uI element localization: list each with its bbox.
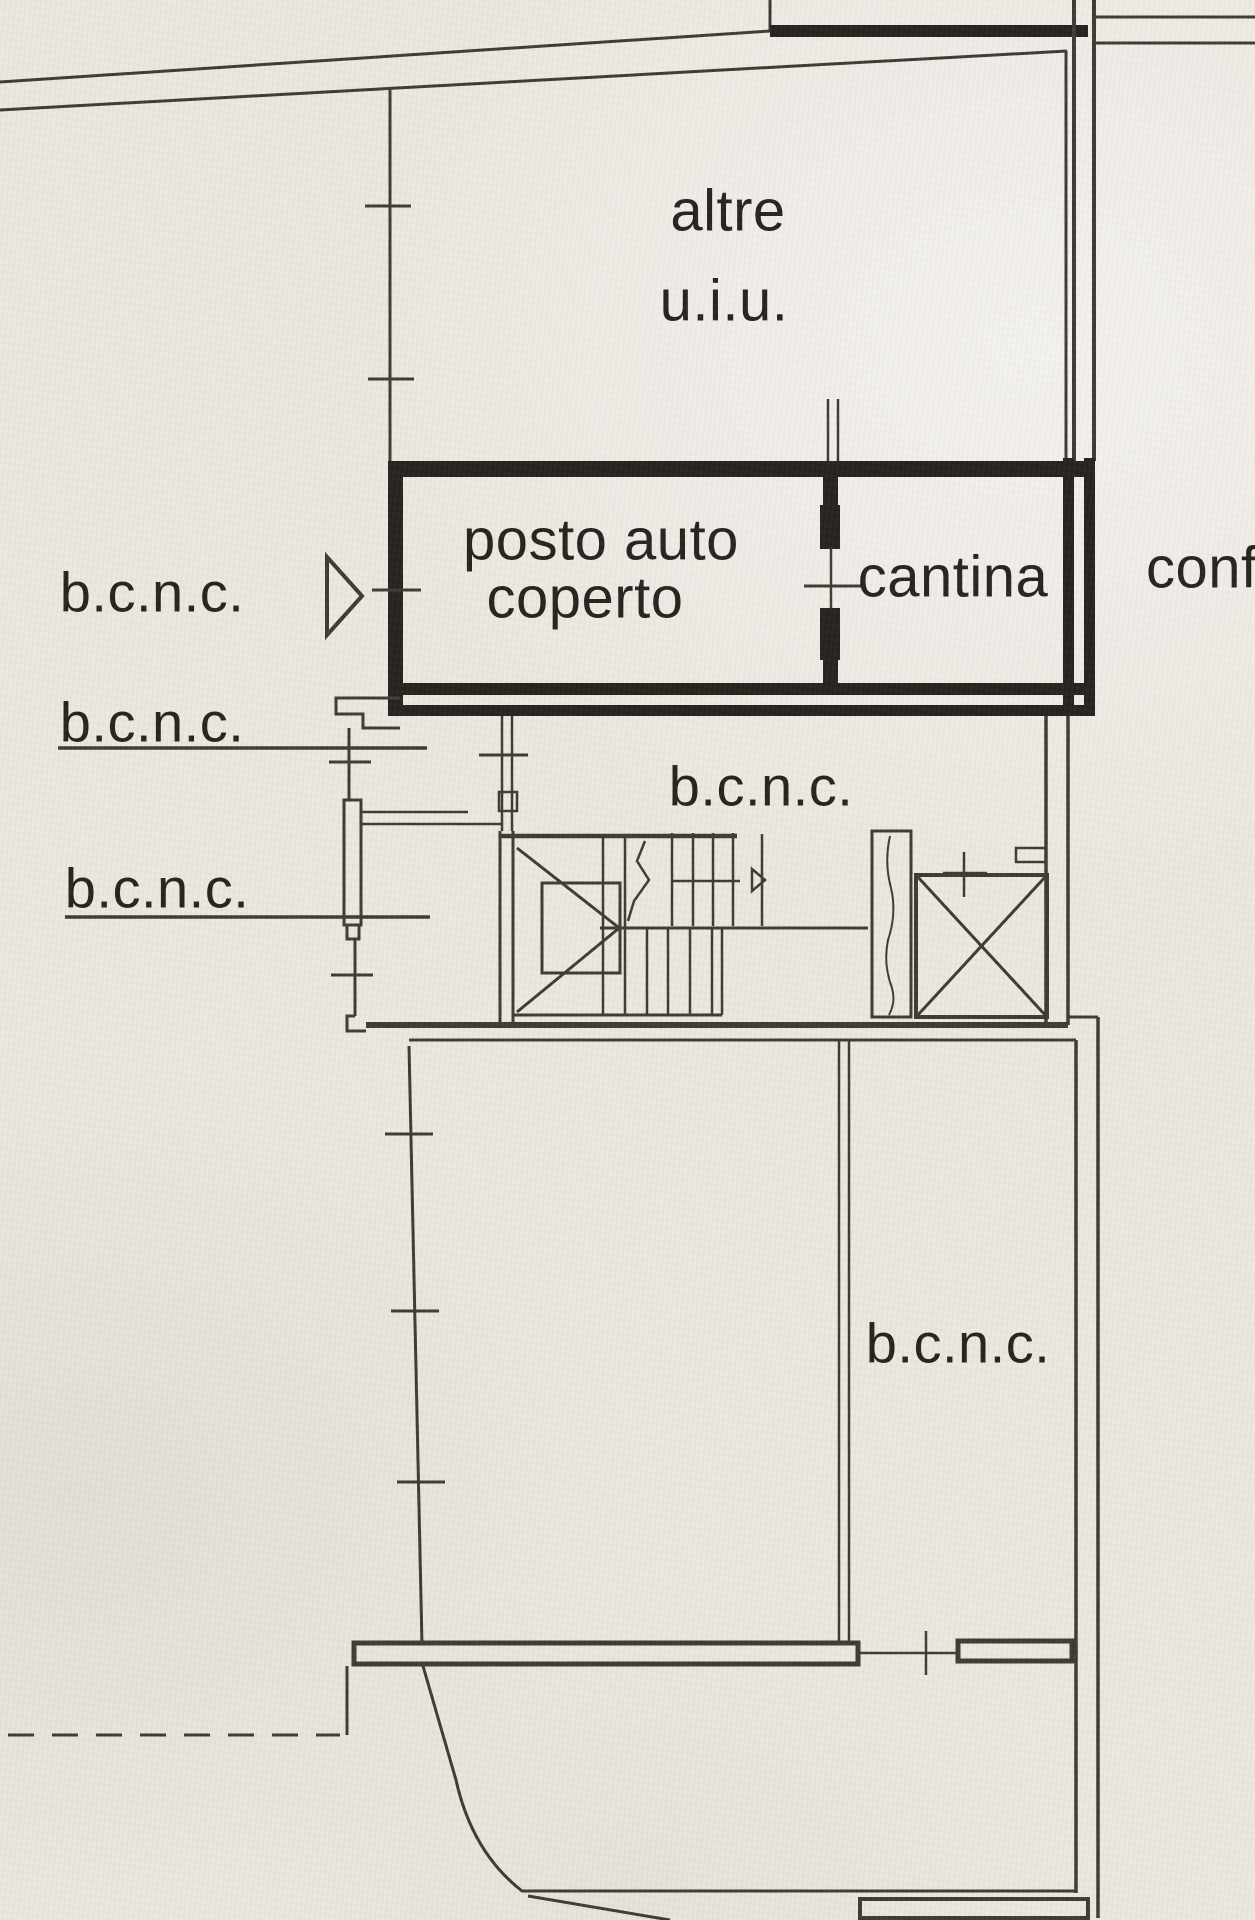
right-exterior-wall [1074,0,1094,461]
lower-rooms [385,1017,1098,1918]
lower-left-wall [409,1046,422,1645]
right-edge-boundary [1094,17,1255,43]
room-altre-uiu-walls [365,51,1066,461]
top-box-bottom-wall [770,25,1088,37]
box-top-wall [388,461,1094,477]
stair-break-zigzag [628,841,649,921]
box-bottom-wall-outer [388,683,1094,695]
lower-block-top-walls [366,1025,1076,1040]
divider-jamb-top-block [820,505,840,549]
divider-jamb-bottom-block [820,608,840,660]
top-adjacent-unit [770,0,1088,37]
label-bcnc-bottom-room: b.c.n.c. [866,1311,1051,1376]
window-sill-right [958,1641,1072,1661]
bottom-site-boundary [8,1666,1076,1920]
label-carport-line1: posto auto [463,507,739,574]
elevator-shaft [916,852,1047,1017]
wall-tab [1016,848,1046,862]
door-swing-triangle-icon [327,557,362,635]
pilaster-foot [347,925,359,939]
pier-section-wave [886,836,893,1015]
cantina-right-wall-outer [1084,458,1095,716]
box-bottom-wall-inner [388,705,1094,716]
stairwell [500,831,868,1026]
label-carport-line2: coperto [487,565,684,632]
site-boundary-top [0,31,1067,110]
pilaster [344,800,361,925]
label-altre-line2: u.i.u. [660,268,789,335]
label-altre-line1: altre [670,178,785,245]
label-cantina: cantina [858,544,1049,611]
corner-step [347,1016,366,1031]
boundary-line-lower [0,51,1067,110]
wall-pier [872,831,911,1017]
floorplan-linework [0,0,1255,1920]
right-wall-mid [1016,716,1098,1025]
landing-corridor [362,716,528,831]
label-bcnc-left-top: b.c.n.c. [60,560,245,625]
stair-treads-right-flight [672,833,740,926]
floorplan-scan-page: altre u.i.u. posto auto coperto cantina … [0,0,1255,1920]
boundary-curve [423,1666,1076,1891]
bottom-windows [354,1631,1088,1918]
carport-door [327,557,421,635]
boundary-diagonal [528,1896,670,1920]
label-bcnc-center: b.c.n.c. [669,754,854,819]
label-conf-boundary: conf [1146,535,1255,602]
label-bcnc-left-bottom: b.c.n.c. [65,856,250,921]
window-sill-bottom-cut [860,1899,1088,1918]
cantina-right-wall-inner [1063,458,1074,716]
window-sill-left [354,1643,858,1664]
label-bcnc-left-mid: b.c.n.c. [60,690,245,755]
